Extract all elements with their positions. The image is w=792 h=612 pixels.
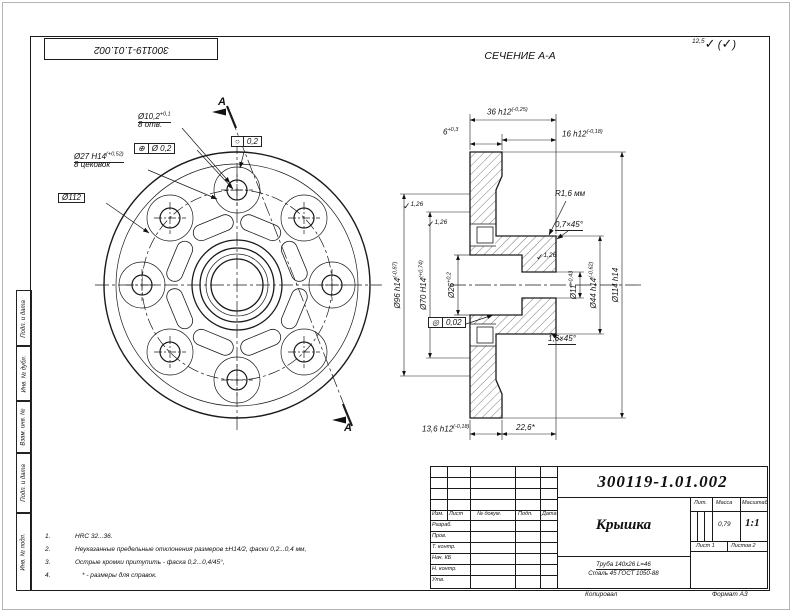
note-text: Острые кромки притупить - фаска 0,2...0,… xyxy=(75,559,225,566)
roughness-check-icon: ✓ xyxy=(536,252,544,262)
tb-row-utv: Утв. xyxy=(432,577,445,583)
mass-value: 0,79 xyxy=(718,521,731,528)
roughness-mark: ✓1,26 xyxy=(403,201,423,212)
dia-70: Ø70 H14(+0,74) xyxy=(419,260,428,310)
scale-value: 1:1 xyxy=(745,517,760,529)
roughness-value: 12,5 xyxy=(692,38,705,45)
tb-header-data: Дата xyxy=(542,511,557,517)
position-tolerance-frame: ⊕ Ø 0,2 xyxy=(134,143,175,154)
margin-cell: Взам. инв. № xyxy=(16,400,32,454)
note-number: 4. xyxy=(45,572,59,579)
margin-cell: Подп. и дата xyxy=(16,452,32,514)
doc-number: 300119-1.01.002 xyxy=(557,468,768,496)
note-text: Неуказанные предельные отклонения размер… xyxy=(75,546,306,553)
bolt-circle-label: Ø112 xyxy=(58,193,85,203)
dim-36: 36 h12(-0,25) xyxy=(487,108,528,117)
stamp-number: 300119-1.01.002 xyxy=(94,44,169,55)
position-symbol-icon: ⊕ xyxy=(135,144,149,153)
tb-row-nkontr: Н. контр. xyxy=(432,566,457,572)
sheet-label: Лист 1 xyxy=(696,543,715,549)
format-label: Формат А3 xyxy=(712,591,748,598)
section-title: СЕЧЕНИЕ А-А xyxy=(440,50,600,62)
tb-header-podp: Подп. xyxy=(518,511,533,517)
lit-label: Лит. xyxy=(694,500,707,506)
roughness-check-icon: ✓ xyxy=(427,219,435,229)
dia-26: Ø26+0,2 xyxy=(447,272,456,298)
scale-label: Масштаб xyxy=(742,500,768,506)
roughness-check-icon: ✓ xyxy=(705,36,716,51)
circularity-symbol-icon: ○ xyxy=(232,137,244,146)
roughness-check-icon: ✓ xyxy=(403,201,411,211)
dia-44: Ø44 h14(-0,62) xyxy=(589,262,598,309)
margin-cell: Инв. № дубл. xyxy=(16,345,32,402)
margin-cell: Инв. № подл. xyxy=(16,512,32,591)
hole-dimension-label: Ø10,2+0,1 8 отв. xyxy=(138,112,171,129)
section-letter-bottom: А xyxy=(344,422,352,434)
tb-row-tkontr: Т. контр. xyxy=(432,544,456,550)
drawing-sheet: 300119-1.01.002 12,5✓ (✓) СЕЧЕНИЕ А-А Ø1… xyxy=(0,0,792,612)
tb-header-list: Лист xyxy=(449,511,463,517)
roughness-mark: ✓1,26 xyxy=(427,219,447,230)
note-text: HRC 32...36. xyxy=(75,533,113,540)
section-letter-top: А xyxy=(218,96,226,108)
dia-96: Ø96 h14(-0,87) xyxy=(393,262,402,309)
material: Труба 140х26 L=46 Сталь 45 ГОСТ 1050-88 xyxy=(557,560,690,579)
circularity-tolerance-frame: ○ 0,2 xyxy=(231,136,262,147)
mass-label: Масса xyxy=(716,500,732,506)
part-name: Крышка xyxy=(557,505,690,545)
tb-header-dokum: № докум. xyxy=(477,511,501,517)
concentricity-tolerance-frame: ◎ 0,02 xyxy=(428,317,466,328)
dia-11: Ø11+0,43 xyxy=(569,271,578,299)
note-number: 1. xyxy=(45,533,59,540)
concentricity-symbol-icon: ◎ xyxy=(429,318,443,327)
copied-label: Копировал xyxy=(585,591,617,598)
sheets-label: Листов 2 xyxy=(731,543,756,549)
tb-row-prov: Пров. xyxy=(432,533,447,539)
note-number: 2. xyxy=(45,546,59,553)
tb-header-izm: Изм. xyxy=(432,511,444,517)
tb-row-nachkb: Нач. КБ xyxy=(432,555,451,561)
note-number: 3. xyxy=(45,559,59,566)
radius-label: R1,6 мм xyxy=(555,190,585,198)
chamfer-bore-label: 1,6×45° xyxy=(548,335,576,345)
dim-16: 16 h12(-0,18) xyxy=(562,130,603,139)
tb-row-razrab: Разраб. xyxy=(432,522,452,528)
general-roughness-mark: 12,5✓ (✓) xyxy=(692,36,736,52)
note-text: * - размеры для справок. xyxy=(82,572,157,579)
roughness-check-icon: ✓ xyxy=(721,36,732,51)
dim-6: 6+0,3 xyxy=(443,128,458,137)
counterbore-dimension-label: Ø27 H14(+0,52) 8 цековок xyxy=(74,152,124,169)
margin-cell: Подп. и дата xyxy=(16,290,32,347)
chamfer-small-label: 0,7×45° xyxy=(555,221,583,231)
roughness-mark: ✓1,26 xyxy=(536,252,556,263)
dia-114: Ø114 h14 xyxy=(612,268,620,303)
top-left-stamp: 300119-1.01.002 xyxy=(44,38,218,60)
dim-22-6: 22,6* xyxy=(516,424,535,432)
dim-13-6: 13,6 h12(-0,18) xyxy=(422,425,469,434)
